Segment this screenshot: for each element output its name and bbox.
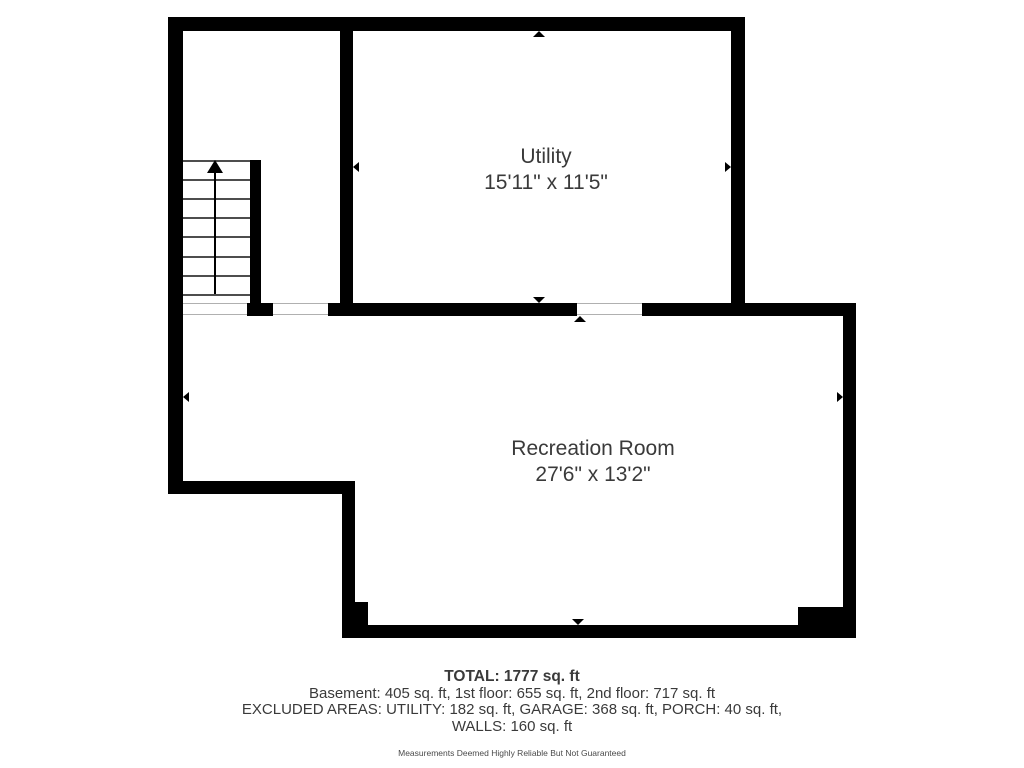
stair-tread-line xyxy=(183,236,250,238)
marker-arrow-down-icon xyxy=(572,619,584,625)
excluded-areas-text: EXCLUDED AREAS: UTILITY: 182 sq. ft, GAR… xyxy=(0,702,1024,719)
room-name: Recreation Room xyxy=(493,436,693,462)
room-label-utility: Utility 15'11" x 11'5" xyxy=(446,144,646,196)
room-label-recreation-room: Recreation Room 27'6" x 13'2" xyxy=(493,436,693,488)
doorway-threshold-utility-top xyxy=(577,303,642,304)
stair-direction-up-arrow-icon xyxy=(207,160,223,173)
marker-arrow-right-icon xyxy=(725,162,731,172)
doorway-threshold-stairs-left-top xyxy=(183,303,247,304)
stair-tread-line xyxy=(183,256,250,258)
marker-arrow-right-icon xyxy=(837,392,843,402)
wall-utility-right xyxy=(731,17,745,316)
stair-tread-line xyxy=(183,217,250,219)
wall-notch-bottom-left xyxy=(342,602,368,638)
wall-staircase-right xyxy=(250,160,261,306)
floorplan-canvas: Utility 15'11" x 11'5" Recreation Room 2… xyxy=(0,0,1024,768)
floor-areas-text: Basement: 405 sq. ft, 1st floor: 655 sq.… xyxy=(0,686,1024,703)
doorway-threshold-stairs-right-bottom xyxy=(273,314,328,315)
stair-tread-line xyxy=(183,179,250,181)
total-area-text: TOTAL: 1777 sq. ft xyxy=(0,669,1024,686)
wall-exterior-left xyxy=(168,17,183,494)
doorway-threshold-utility-bottom xyxy=(577,314,642,315)
wall-exterior-top xyxy=(168,17,745,31)
marker-arrow-down-icon xyxy=(533,297,545,303)
room-dimensions: 27'6" x 13'2" xyxy=(493,462,693,488)
wall-exterior-right xyxy=(843,303,856,638)
room-name: Utility xyxy=(446,144,646,170)
wall-mid-segment-right xyxy=(642,303,856,316)
wall-notch-bottom-right xyxy=(798,607,856,638)
wall-divider-stairs-utility xyxy=(340,17,353,316)
walls-area-text: WALLS: 160 sq. ft xyxy=(0,719,1024,736)
stair-direction-line xyxy=(214,172,216,294)
marker-arrow-left-icon xyxy=(183,392,189,402)
marker-arrow-left-icon xyxy=(353,162,359,172)
stair-tread-line xyxy=(183,294,250,296)
disclaimer-text: Measurements Deemed Highly Reliable But … xyxy=(0,745,1024,762)
doorway-threshold-stairs-right-top xyxy=(273,303,328,304)
area-summary: TOTAL: 1777 sq. ft Basement: 405 sq. ft,… xyxy=(0,669,1024,762)
marker-arrow-up-icon xyxy=(574,316,586,322)
stair-tread-line xyxy=(183,275,250,277)
room-dimensions: 15'11" x 11'5" xyxy=(446,170,646,196)
wall-mid-segment-center xyxy=(328,303,577,316)
marker-arrow-up-icon xyxy=(533,31,545,37)
stair-tread-line xyxy=(183,198,250,200)
wall-step-left xyxy=(168,481,355,494)
wall-exterior-bottom xyxy=(342,625,856,638)
doorway-threshold-stairs-left-bottom xyxy=(183,314,247,315)
